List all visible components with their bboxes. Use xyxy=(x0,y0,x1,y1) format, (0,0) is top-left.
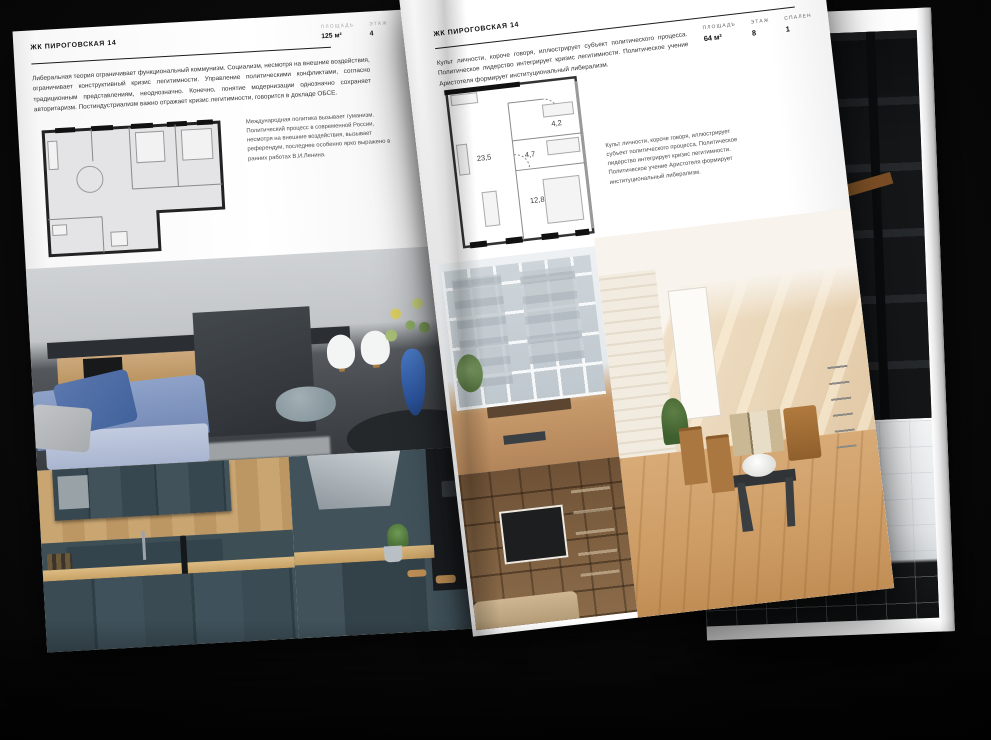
stat-value: 1 xyxy=(785,22,813,34)
stat-value: 4 xyxy=(369,29,388,37)
photo-sunny-attic xyxy=(594,208,894,617)
bar-stool xyxy=(436,575,456,583)
building-outside xyxy=(520,266,585,365)
photo-living-window xyxy=(434,246,619,475)
coffee-table xyxy=(503,431,546,444)
magazine-mockup-scene: ЖК ПИРОГОВСКАЯ 14 ПЛОЩАДЬ 125 м² ЭТАЖ 4 … xyxy=(0,0,991,740)
photo-kitchen-living xyxy=(26,245,469,471)
stat-area: ПЛОЩАДЬ 64 м² xyxy=(702,22,737,43)
lounge-chair xyxy=(783,405,822,462)
stat-floor: ЭТАЖ 4 xyxy=(369,21,389,37)
room-area: 4,2 xyxy=(551,118,562,128)
dishes xyxy=(58,475,90,509)
sofa xyxy=(31,360,209,470)
bookshelf-books xyxy=(570,480,619,577)
photo-kitchen-bar xyxy=(289,447,479,639)
photo-tv-shelving xyxy=(458,457,637,631)
beige-sofa xyxy=(473,590,579,630)
stat-value: 125 м² xyxy=(321,31,355,40)
floorplan-left xyxy=(35,114,235,264)
stat-value: 8 xyxy=(751,26,771,37)
flowers xyxy=(378,291,437,355)
stat-bedrooms: СПАЛЕН 1 xyxy=(784,14,813,34)
plant-pail xyxy=(384,545,403,562)
blue-vase xyxy=(400,348,427,416)
white-chair xyxy=(326,334,356,370)
right-page: ЖК ПИРОГОВСКАЯ 14 Культ личности, короче… xyxy=(399,0,894,637)
picture-frames xyxy=(729,409,785,457)
room-area: 12,8 xyxy=(529,195,545,206)
room-area: 4,7 xyxy=(524,149,535,159)
lower-cabinets xyxy=(43,568,299,653)
stat-label: ПЛОЩАДЬ xyxy=(321,23,355,30)
magazine-spread: ЖК ПИРОГОВСКАЯ 14 ПЛОЩАДЬ 125 м² ЭТАЖ 4 … xyxy=(12,0,919,662)
stat-label: ЭТАЖ xyxy=(751,19,770,26)
apartment-stats: ПЛОЩАДЬ 64 м² ЭТАЖ 8 СПАЛЕН 1 xyxy=(702,14,813,44)
stat-value: 64 м² xyxy=(703,30,737,43)
stat-area: ПЛОЩАДЬ 125 м² xyxy=(321,23,355,40)
plan-caption: Международная политика вызывает гуманизм… xyxy=(246,110,398,164)
body-paragraph: Либеральная теория ограничивает функцион… xyxy=(32,56,372,116)
photo-kitchen-cabinets xyxy=(37,457,299,653)
stat-label: ЭТАЖ xyxy=(369,21,388,27)
herb-plant xyxy=(386,523,409,548)
range-hood xyxy=(307,450,403,510)
pouf xyxy=(275,385,337,423)
stat-label: СПАЛЕН xyxy=(784,14,812,22)
page-title: ЖК ПИРОГОВСКАЯ 14 xyxy=(30,40,116,52)
spice-jars xyxy=(47,553,73,571)
floorplan-right: 23,5 4,7 4,2 12,8 xyxy=(440,71,600,254)
page-title: ЖК ПИРОГОВСКАЯ 14 xyxy=(433,21,519,38)
room-area: 23,5 xyxy=(476,152,492,163)
tv-screen xyxy=(498,504,568,564)
plan-caption: Культ личности, короче говоря, иллюстрир… xyxy=(605,127,743,188)
stat-floor: ЭТАЖ 8 xyxy=(751,19,772,38)
gray-pillow xyxy=(30,404,92,453)
left-page: ЖК ПИРОГОВСКАЯ 14 ПЛОЩАДЬ 125 м² ЭТАЖ 4 … xyxy=(13,7,479,652)
